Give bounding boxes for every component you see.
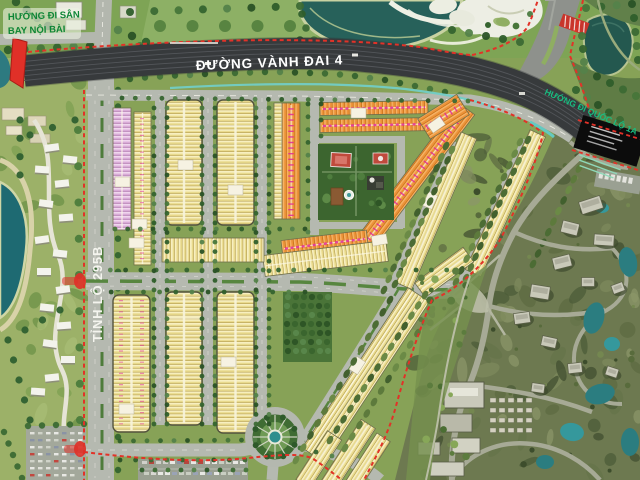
- svg-text:BAY NỘI BÀI: BAY NỘI BÀI: [8, 23, 66, 37]
- svg-text:TỈNH LỘ 295B: TỈNH LỘ 295B: [90, 246, 105, 342]
- svg-text:HƯỚNG ĐI SÂN: HƯỚNG ĐI SÂN: [8, 8, 80, 23]
